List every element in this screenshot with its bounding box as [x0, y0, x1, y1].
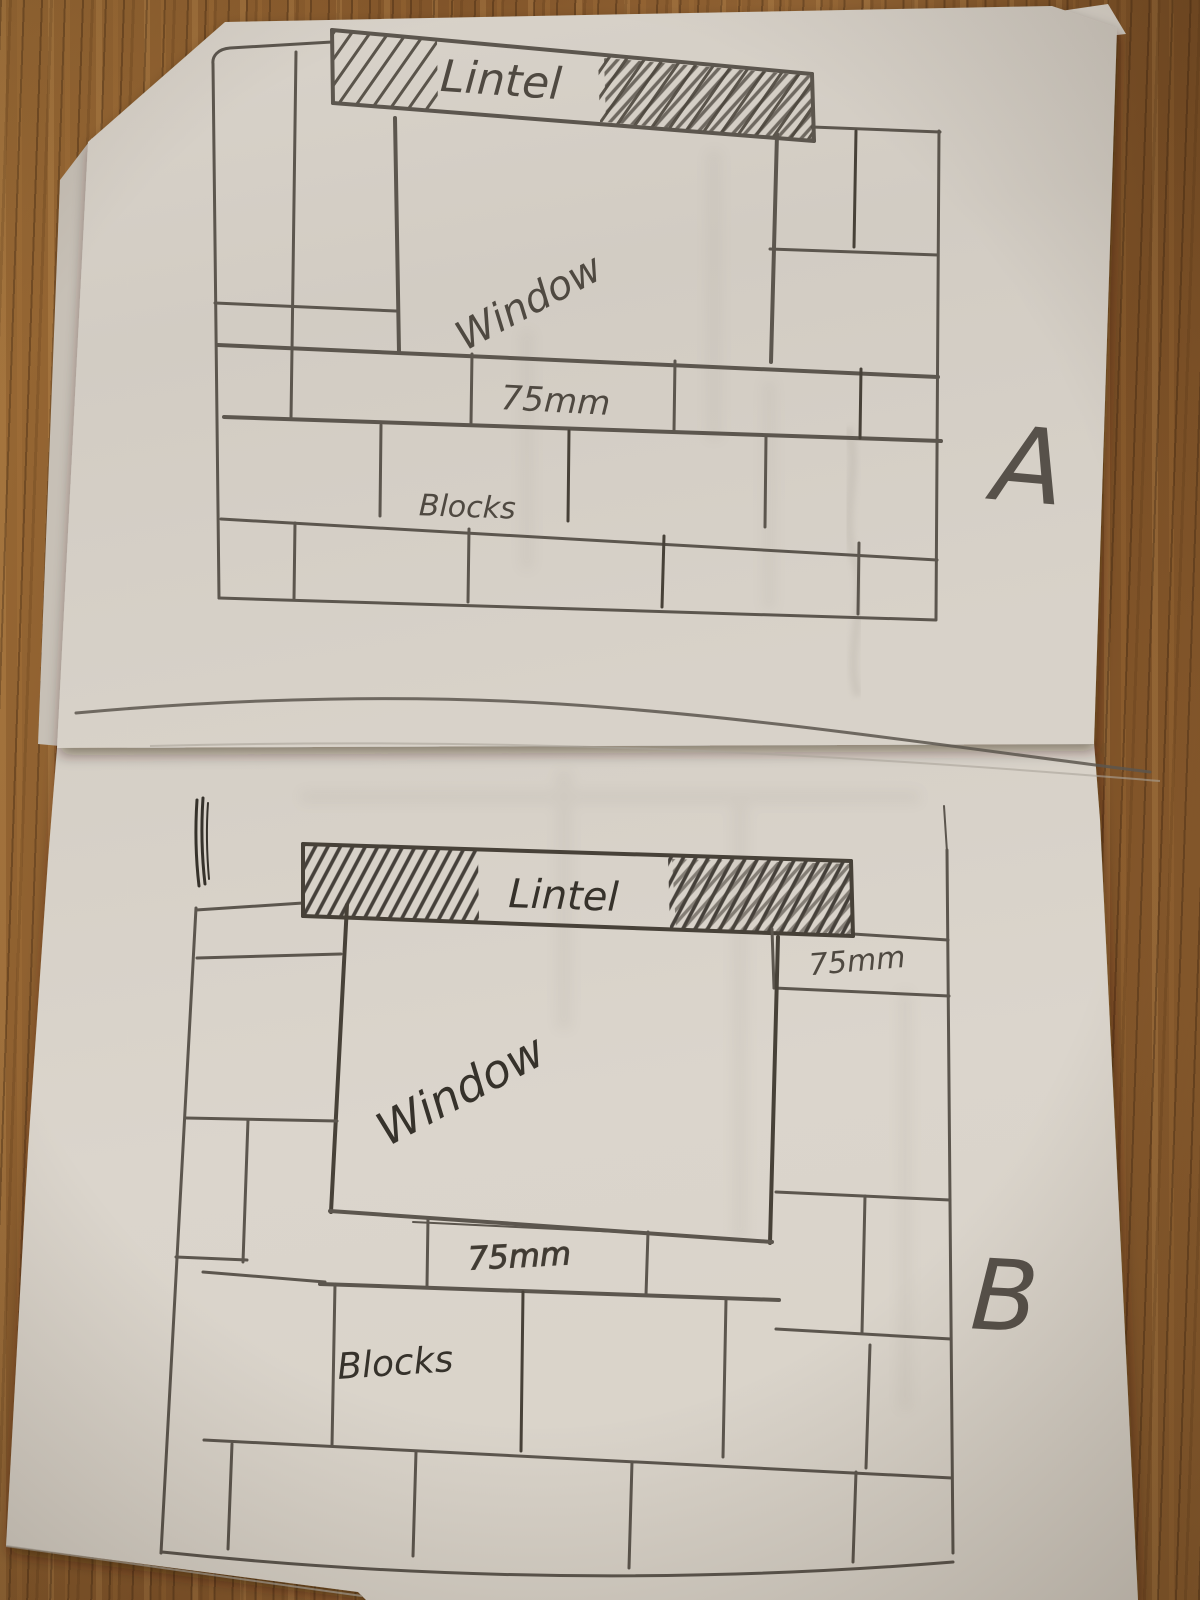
sketch-canvas: Lintel Window 75mm: [0, 0, 1200, 1600]
lintel-hatch-left-b: [303, 845, 479, 922]
lintel-label-b: Lintel: [508, 871, 620, 921]
lintel-label-a: Lintel: [439, 51, 564, 110]
blocks-label-a: Blocks: [418, 488, 516, 526]
course-label-b: 75mm: [467, 1234, 572, 1277]
lintel-hatch-left-a: [333, 31, 438, 112]
blocks-label-b: Blocks: [336, 1339, 455, 1388]
photo-of-sketches: { "scene_title": "Hand-drawn block wall …: [0, 0, 1200, 1600]
lintel-hatch-right-b-overlay: [672, 859, 853, 936]
letter-b: B: [968, 1238, 1041, 1355]
course-label-a: 75mm: [500, 378, 611, 424]
